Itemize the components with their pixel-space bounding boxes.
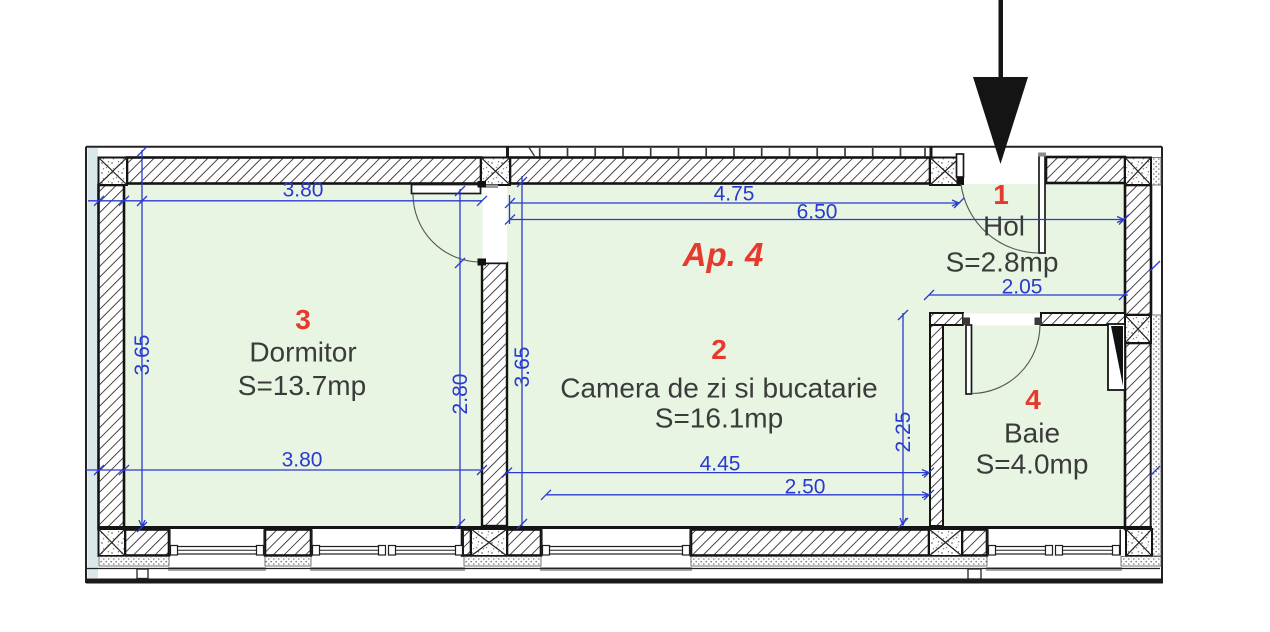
svg-text:3.80: 3.80 [282,449,323,472]
svg-text:4.45: 4.45 [700,453,741,476]
svg-text:3.65: 3.65 [511,347,534,388]
svg-text:2.50: 2.50 [785,475,826,498]
svg-text:4.75: 4.75 [714,183,755,206]
svg-text:3: 3 [295,304,311,335]
svg-text:S=16.1mp: S=16.1mp [655,403,783,434]
svg-text:2: 2 [711,334,727,365]
svg-text:Dormitor: Dormitor [249,337,356,368]
svg-text:1: 1 [993,179,1009,210]
svg-text:6.50: 6.50 [797,201,838,224]
svg-text:2.80: 2.80 [449,374,472,415]
svg-text:Ap. 4: Ap. 4 [682,236,764,273]
svg-text:Camera de zi si bucatarie: Camera de zi si bucatarie [560,373,877,404]
svg-text:S=4.0mp: S=4.0mp [976,449,1089,480]
svg-text:3.80: 3.80 [283,179,324,202]
svg-text:4: 4 [1025,384,1041,415]
svg-text:Hol: Hol [983,211,1025,242]
svg-text:3.65: 3.65 [131,335,154,376]
svg-text:Baie: Baie [1004,418,1060,449]
svg-text:S=13.7mp: S=13.7mp [238,370,366,401]
svg-text:S=2.8mp: S=2.8mp [946,247,1059,278]
svg-text:2.25: 2.25 [892,412,915,453]
svg-text:2.05: 2.05 [1002,276,1043,299]
